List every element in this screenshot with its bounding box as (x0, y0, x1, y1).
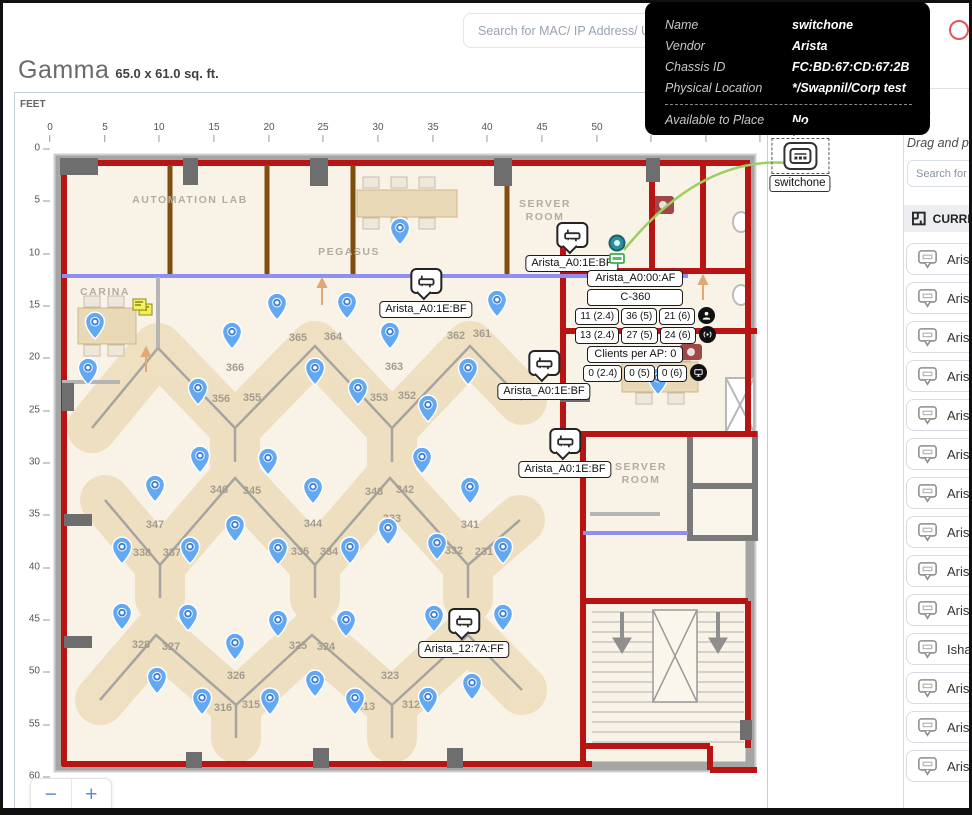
location-pin-icon[interactable] (493, 536, 514, 565)
selected-ap-model: C-360 (587, 289, 683, 306)
x-tick: 10 (153, 122, 164, 142)
x-tick: 35 (427, 122, 438, 142)
desk-number: 328 (132, 639, 150, 651)
selected-ap-name[interactable]: Arista_A0:00:AF (587, 270, 683, 287)
stat-value: 0 (2.4) (583, 365, 622, 382)
desk-number: 366 (226, 362, 244, 374)
y-tick: 15 (20, 300, 40, 311)
ap-icon (917, 445, 938, 464)
location-pin-icon[interactable] (348, 377, 369, 406)
ap-name-label: Arista_A0:1E:BF (379, 301, 472, 318)
location-pin-icon[interactable] (412, 446, 433, 475)
desk-number: 361 (473, 328, 491, 340)
location-pin-icon[interactable] (190, 445, 211, 474)
stat-value: 36 (5) (621, 308, 657, 325)
y-tick: 55 (20, 719, 40, 730)
tooltip-row: Physical Location */Swapnil/Corp test (665, 77, 912, 98)
tooltip-row: Chassis ID FC:BD:67:CD:67:2B (665, 56, 912, 77)
x-tick: 20 (263, 122, 274, 142)
x-tick: 5 (102, 122, 108, 142)
ap-callout[interactable]: Arista_12:7A:FF (418, 608, 509, 658)
ap-icon (556, 222, 588, 248)
location-pin-icon[interactable] (85, 311, 106, 340)
location-pin-icon[interactable] (305, 357, 326, 386)
placed-ap-name: Aris (947, 369, 969, 384)
location-pin-icon[interactable] (427, 532, 448, 561)
desk-number: 323 (381, 670, 399, 682)
location-pin-icon[interactable] (188, 377, 209, 406)
placed-ap-name: Aris (947, 408, 969, 423)
desk-number: 352 (398, 390, 416, 402)
desk-number: 327 (162, 641, 180, 653)
placed-ap-name: Aris (947, 681, 969, 696)
desk-number: 315 (242, 699, 260, 711)
floor-dimensions: 65.0 x 61.0 sq. ft. (115, 66, 218, 81)
location-pin-icon[interactable] (222, 321, 243, 350)
x-tick: 40 (481, 122, 492, 142)
tooltip-field-value: switchone (792, 18, 853, 32)
clients-row: 0 (2.4)0 (5)0 (6) (583, 365, 687, 382)
y-tick: 20 (20, 352, 40, 363)
desk-number: 335 (291, 546, 309, 558)
placed-ap-name: Aris (947, 447, 969, 462)
sidebar-divider (903, 88, 904, 815)
tooltip-field-value: */Swapnil/Corp test (792, 81, 906, 95)
placed-ap-list-item[interactable]: Aris (906, 399, 972, 431)
ap-icon (917, 406, 938, 425)
selected-ap-device-icon[interactable] (604, 234, 630, 271)
desk-number: 353 (370, 392, 388, 404)
tooltip-field-label: Available to Place (665, 113, 792, 127)
ap-icon (917, 679, 938, 698)
y-tick: 35 (20, 509, 40, 520)
ap-icon (528, 350, 560, 376)
location-pin-icon[interactable] (418, 686, 439, 715)
desk-number: 326 (227, 670, 245, 682)
desk-number: 362 (447, 330, 465, 342)
location-pin-icon[interactable] (378, 517, 399, 546)
search-input[interactable] (463, 13, 661, 48)
placed-ap-name: Isha (947, 642, 972, 657)
location-pin-icon[interactable] (268, 537, 289, 566)
location-pin-icon[interactable] (145, 474, 166, 503)
stat-value: 13 (2.4) (575, 327, 619, 344)
location-pin-icon[interactable] (460, 476, 481, 505)
placed-ap-name: Aris (947, 603, 969, 618)
y-tick: 10 (20, 248, 40, 259)
location-pin-icon[interactable] (336, 609, 357, 638)
ap-icon (917, 250, 938, 269)
map-zoom-control: − + (30, 778, 112, 812)
desk-number: 337 (163, 547, 181, 559)
ap-icon (917, 523, 938, 542)
ap-icon (917, 601, 938, 620)
placed-ap-list-item[interactable]: Isha (906, 633, 972, 665)
radio-signal-icon (699, 326, 716, 343)
location-pin-icon[interactable] (380, 321, 401, 350)
placed-ap-name: Aris (947, 564, 969, 579)
floor-name: Gamma (18, 56, 109, 84)
floorplan-icon (912, 211, 926, 226)
zoom-in-button[interactable]: + (72, 779, 112, 811)
section-header-label: CURREN (933, 212, 972, 226)
location-pin-icon[interactable] (303, 476, 324, 505)
location-pin-icon[interactable] (458, 357, 479, 386)
ruler-unit-label: FEET (20, 99, 46, 110)
placed-ap-list-item[interactable]: Aris (906, 516, 972, 548)
desk-number: 364 (324, 331, 342, 343)
page-title: Gamma65.0 x 61.0 sq. ft. (18, 56, 219, 85)
room-label: AUTOMATION LAB (132, 194, 248, 206)
tooltip-field-label: Name (665, 18, 792, 32)
placed-ap-name: Aris (947, 330, 969, 345)
ap-icon (917, 718, 938, 737)
ap-name-label: Arista_A0:1E:BF (518, 461, 611, 478)
placed-ap-list-item[interactable]: Aris (906, 711, 972, 743)
desk-number: 356 (212, 393, 230, 405)
placed-ap-list-item[interactable]: Aris (906, 243, 972, 275)
alert-ring-icon[interactable] (949, 20, 969, 40)
room-label: CARINA (80, 286, 130, 298)
y-tick: 0 (20, 143, 40, 154)
neighbors-row: 11 (2.4)36 (5)21 (6) (575, 308, 695, 325)
placed-ap-list-item[interactable]: Aris (906, 477, 972, 509)
x-tick: 25 (317, 122, 328, 142)
drag-and-place-hint: Drag and pl (907, 136, 972, 150)
x-tick: 0 (47, 122, 53, 142)
desk-number: 332 (445, 545, 463, 557)
location-pin-icon[interactable] (337, 291, 358, 320)
ap-icon (917, 367, 938, 386)
desk-number: 355 (243, 392, 261, 404)
desk-number: 338 (133, 547, 151, 559)
desk-number: 365 (289, 332, 307, 344)
location-pin-icon[interactable] (147, 666, 168, 695)
location-pin-icon[interactable] (268, 609, 289, 638)
x-tick: 30 (372, 122, 383, 142)
desk-number: 324 (317, 641, 335, 653)
placed-ap-list-item[interactable]: Aris (906, 555, 972, 587)
location-pin-icon[interactable] (340, 536, 361, 565)
placed-ap-name: Aris (947, 525, 969, 540)
tooltip-rows: Name switchone Vendor Arista Chassis ID … (665, 14, 912, 98)
y-tick: 25 (20, 405, 40, 416)
location-pin-icon[interactable] (487, 289, 508, 318)
ap-icon (410, 268, 442, 294)
placed-ap-list-item[interactable]: Aris (906, 321, 972, 353)
tooltip-divider (665, 104, 912, 105)
location-pin-icon[interactable] (78, 357, 99, 386)
location-pin-icon[interactable] (178, 603, 199, 632)
stat-value: 11 (2.4) (575, 308, 619, 325)
ap-icon (917, 289, 938, 308)
location-pin-icon[interactable] (112, 602, 133, 631)
y-tick: 40 (20, 562, 40, 573)
currently-placed-header: CURREN (904, 205, 972, 232)
ap-icon (448, 608, 480, 634)
desk-number: 341 (461, 519, 479, 531)
ap-icon (549, 428, 581, 454)
stat-value: 24 (6) (660, 327, 696, 344)
ap-callout[interactable]: Arista_A0:1E:BF (379, 268, 472, 318)
placed-ap-name: Aris (947, 759, 969, 774)
ap-icon (917, 757, 938, 776)
location-pin-icon[interactable] (180, 536, 201, 565)
y-tick: 45 (20, 614, 40, 625)
placed-ap-name: Aris (947, 720, 969, 735)
zoom-out-button[interactable]: − (31, 779, 72, 811)
ap-icon (917, 640, 938, 659)
tooltip-caret (783, 122, 805, 147)
location-pin-icon[interactable] (418, 394, 439, 423)
room-label: SERVER ROOM (610, 461, 672, 487)
placed-ap-list-item[interactable]: Aris (906, 750, 972, 782)
ap-icon (917, 328, 938, 347)
location-pin-icon[interactable] (305, 669, 326, 698)
desk-number: 334 (320, 546, 338, 558)
room-label: SERVER ROOM (514, 198, 576, 224)
x-tick: 45 (536, 122, 547, 142)
tooltip-field-label: Vendor (665, 39, 792, 53)
switch-name-label: switchone (769, 175, 830, 192)
location-pin-icon[interactable] (258, 447, 279, 476)
placed-ap-name: Aris (947, 252, 969, 267)
desk-number: 345 (243, 485, 261, 497)
location-pin-icon[interactable] (260, 687, 281, 716)
radios-row: 13 (2.4)27 (5)24 (6) (575, 327, 696, 344)
location-pin-icon[interactable] (225, 514, 246, 543)
placed-ap-name: Aris (947, 291, 969, 306)
tooltip-field-value: FC:BD:67:CD:67:2B (792, 60, 909, 74)
x-tick: 50 (591, 122, 602, 142)
desk-number: 346 (210, 484, 228, 496)
placed-ap-list-item[interactable]: Aris (906, 594, 972, 626)
y-tick: 30 (20, 457, 40, 468)
placed-ap-name: Aris (947, 486, 969, 501)
ap-name-label: Arista_12:7A:FF (418, 641, 509, 658)
location-pin-icon[interactable] (345, 687, 366, 716)
tooltip-row: Name switchone (665, 14, 912, 35)
floorplan-canvas[interactable] (14, 92, 768, 815)
stat-value: 21 (6) (659, 308, 695, 325)
desk-number: 316 (214, 702, 232, 714)
sidebar-search-input[interactable] (907, 160, 972, 187)
ap-icon (917, 484, 938, 503)
device-tooltip: Name switchone Vendor Arista Chassis ID … (645, 2, 930, 135)
placed-ap-list-item[interactable]: Aris (906, 672, 972, 704)
location-pin-icon[interactable] (192, 687, 213, 716)
desk-number: 342 (396, 484, 414, 496)
location-pin-icon[interactable] (225, 632, 246, 661)
desk-number: 231 (475, 546, 493, 558)
desk-number: 325 (289, 640, 307, 652)
desk-number: 343 (365, 486, 383, 498)
location-pin-icon[interactable] (462, 672, 483, 701)
tooltip-row: Vendor Arista (665, 35, 912, 56)
stat-value: 27 (5) (621, 327, 657, 344)
tooltip-field-label: Chassis ID (665, 60, 792, 74)
placed-ap-list-item[interactable]: Aris (906, 438, 972, 470)
tooltip-field-label: Physical Location (665, 81, 792, 95)
desk-number: 347 (146, 519, 164, 531)
location-pin-icon[interactable] (390, 217, 411, 246)
location-pin-icon[interactable] (112, 536, 133, 565)
placed-ap-list: Aris Aris Aris Aris (906, 243, 972, 782)
y-tick: 50 (20, 666, 40, 677)
y-tick: 5 (20, 195, 40, 206)
stat-value: 0 (6) (657, 365, 688, 382)
selected-ap-stats: Arista_A0:00:AF C-360 11 (2.4)36 (5)21 (… (575, 270, 696, 382)
ap-icon (917, 562, 938, 581)
ap-callout[interactable]: Arista_A0:1E:BF (518, 428, 611, 478)
placed-ap-list-item[interactable]: Aris (906, 282, 972, 314)
ap-name-label: Arista_A0:1E:BF (497, 383, 590, 400)
location-pin-icon[interactable] (267, 292, 288, 321)
placed-ap-list-item[interactable]: Aris (906, 360, 972, 392)
tooltip-field-value: Arista (792, 39, 827, 53)
stat-value: 0 (5) (624, 365, 655, 382)
clients-per-ap-label: Clients per AP: 0 (587, 346, 683, 363)
room-label: PEGASUS (318, 246, 380, 258)
desk-number: 363 (385, 361, 403, 373)
desk-number: 344 (304, 518, 322, 530)
x-tick: 15 (208, 122, 219, 142)
